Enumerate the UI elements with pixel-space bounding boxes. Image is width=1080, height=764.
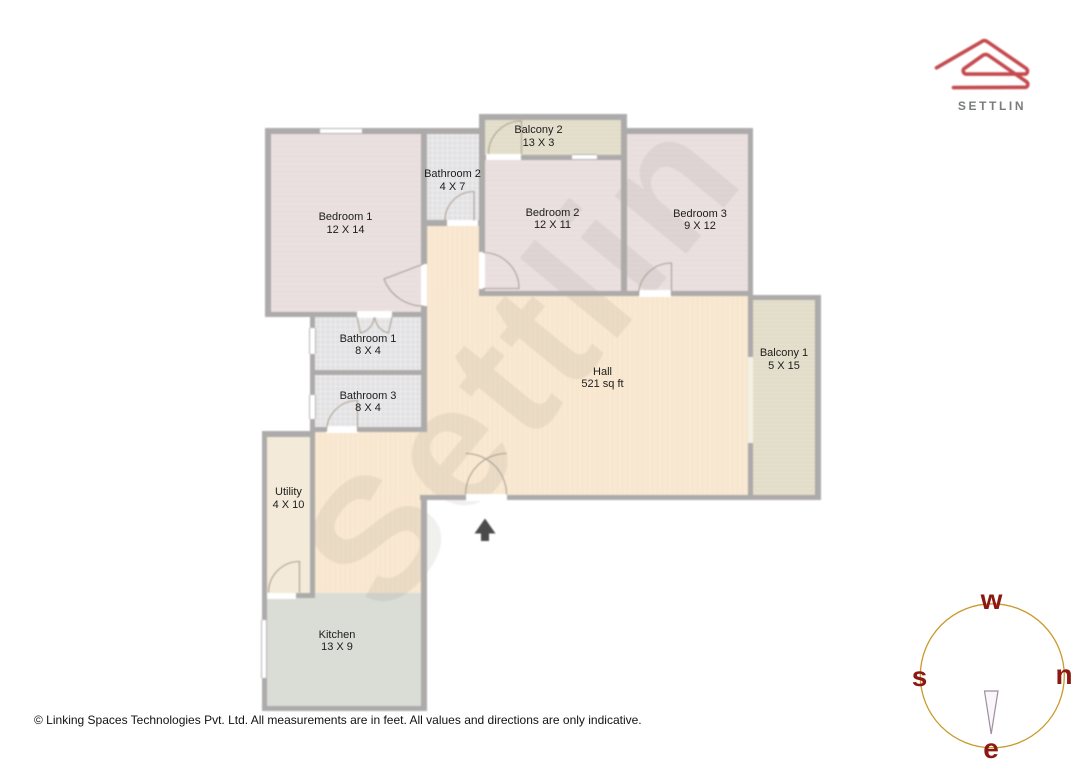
svg-text:w: w xyxy=(980,584,1003,615)
svg-text:n: n xyxy=(1055,659,1072,690)
svg-text:e: e xyxy=(983,733,999,764)
svg-text:s: s xyxy=(912,661,928,692)
